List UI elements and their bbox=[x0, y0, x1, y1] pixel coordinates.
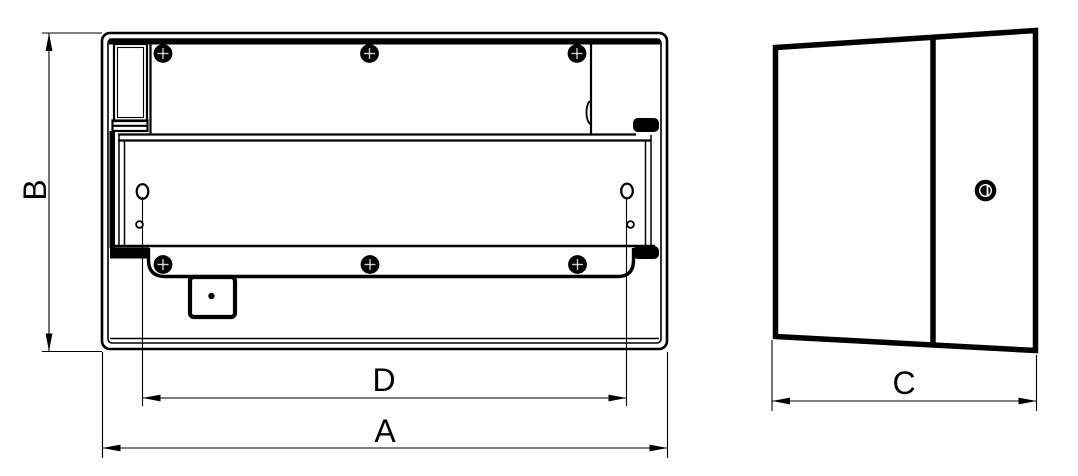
dim-D: D bbox=[143, 197, 627, 406]
pilot-hole-right bbox=[627, 221, 634, 228]
dim-D-label: D bbox=[372, 362, 395, 398]
corner-block-top-right bbox=[633, 118, 659, 132]
technical-drawing-canvas: B D A C bbox=[0, 0, 1078, 476]
enclosure-outer-wall bbox=[102, 33, 667, 349]
lock-icon bbox=[975, 180, 997, 202]
mounting-slot-right bbox=[621, 184, 633, 199]
dim-B-arrow-up bbox=[46, 33, 53, 51]
screw-icon bbox=[568, 44, 587, 63]
screw-icon bbox=[568, 255, 587, 274]
dim-D-arrow-right bbox=[609, 395, 627, 402]
bottom-plate-outline bbox=[149, 248, 634, 277]
side-body-outline bbox=[776, 31, 1036, 351]
screw-icon bbox=[360, 44, 379, 63]
corner-block-bottom-left bbox=[110, 248, 149, 259]
dim-A-arrow-right bbox=[650, 445, 668, 452]
corner-pocket-inner-line bbox=[118, 48, 144, 118]
dim-C-label: C bbox=[892, 365, 915, 401]
corner-block-bottom-right bbox=[633, 246, 659, 259]
pilot-hole-left bbox=[136, 221, 143, 228]
screw-icon bbox=[154, 255, 173, 274]
left-wall-rib bbox=[110, 131, 116, 248]
dim-A-label: A bbox=[374, 413, 396, 449]
dim-B-arrow-down bbox=[46, 334, 53, 352]
side-view bbox=[776, 31, 1036, 351]
screw-icon bbox=[154, 44, 173, 63]
dim-B: B bbox=[17, 33, 102, 352]
corner-pocket bbox=[114, 44, 147, 121]
dim-C-arrow-left bbox=[772, 398, 790, 405]
screw-icon bbox=[361, 255, 380, 274]
dim-C-arrow-right bbox=[1019, 398, 1037, 405]
dim-B-label: B bbox=[17, 179, 53, 200]
dim-A-arrow-left bbox=[103, 445, 121, 452]
square-knockout-center-dot bbox=[208, 293, 214, 299]
dim-D-arrow-left bbox=[143, 395, 161, 402]
mounting-slot-left bbox=[137, 184, 149, 199]
front-view bbox=[102, 33, 667, 349]
